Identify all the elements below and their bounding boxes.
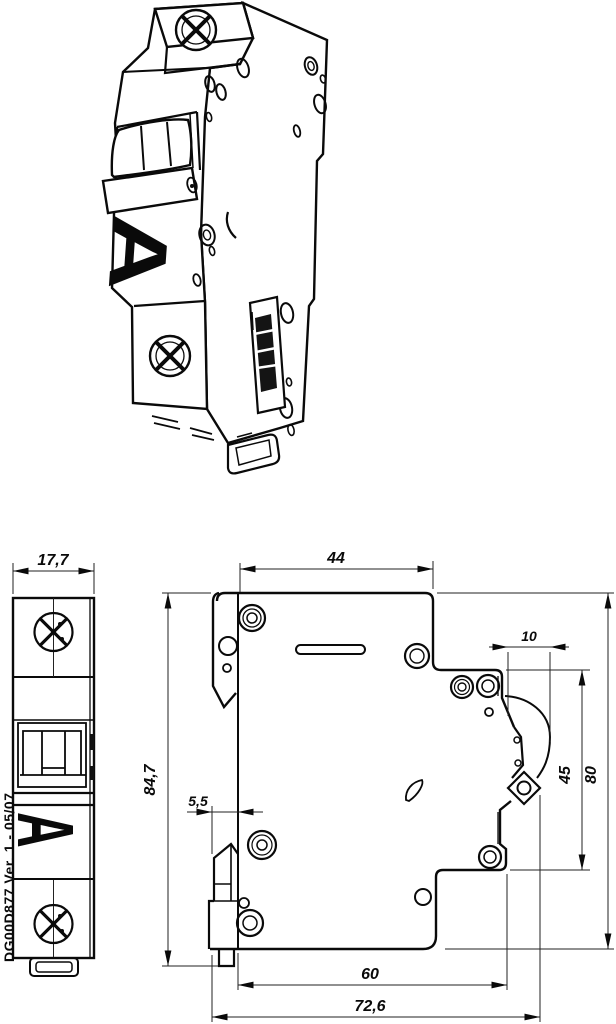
dimension-top-depth: 44 xyxy=(240,550,433,592)
iso-pole-marking: A xyxy=(92,212,187,294)
iso-bottom-screw-icon xyxy=(150,336,190,376)
svg-text:17,7: 17,7 xyxy=(37,552,69,569)
side-view xyxy=(209,593,550,966)
front-din-clip xyxy=(30,958,78,976)
dimension-overall-height: 84,7 xyxy=(142,593,218,966)
technical-drawing-page: A xyxy=(0,0,616,1024)
side-terminal-tab xyxy=(512,727,523,778)
drawing-number: DG00D877 Ver. 1 - 05/07 xyxy=(1,793,17,963)
front-toggle-recess xyxy=(18,723,86,787)
iso-toggle-lever xyxy=(103,112,200,213)
isometric-view: A xyxy=(92,3,328,473)
side-terminal-arc xyxy=(505,696,550,778)
dimension-body-depth: 60 xyxy=(238,874,507,990)
svg-text:5,5: 5,5 xyxy=(188,793,208,809)
dimensions: 17,7 44 84,7 5,5 10 xyxy=(13,550,614,1022)
svg-text:45: 45 xyxy=(557,765,574,785)
dimension-front-width: 17,7 xyxy=(13,552,94,594)
svg-text:84,7: 84,7 xyxy=(142,763,159,795)
dimension-overall-depth: 72,6 xyxy=(212,795,540,1022)
dimension-body-height: 80 xyxy=(437,593,614,949)
svg-text:80: 80 xyxy=(583,766,600,784)
mcb-technical-drawing: A xyxy=(0,0,616,1024)
side-front-fin xyxy=(213,593,236,707)
iso-vent-slots xyxy=(152,416,214,440)
front-toggle-handle xyxy=(20,731,86,775)
side-din-clip xyxy=(209,844,238,966)
svg-text:44: 44 xyxy=(326,550,345,567)
svg-text:60: 60 xyxy=(361,966,379,983)
side-rivets xyxy=(219,605,521,936)
svg-text:10: 10 xyxy=(521,628,537,644)
front-edge-hatch xyxy=(91,734,95,750)
svg-text:72,6: 72,6 xyxy=(354,998,385,1015)
front-edge-hatch xyxy=(91,766,95,780)
iso-top-screw-icon xyxy=(176,10,216,50)
side-outline-top xyxy=(217,593,514,727)
